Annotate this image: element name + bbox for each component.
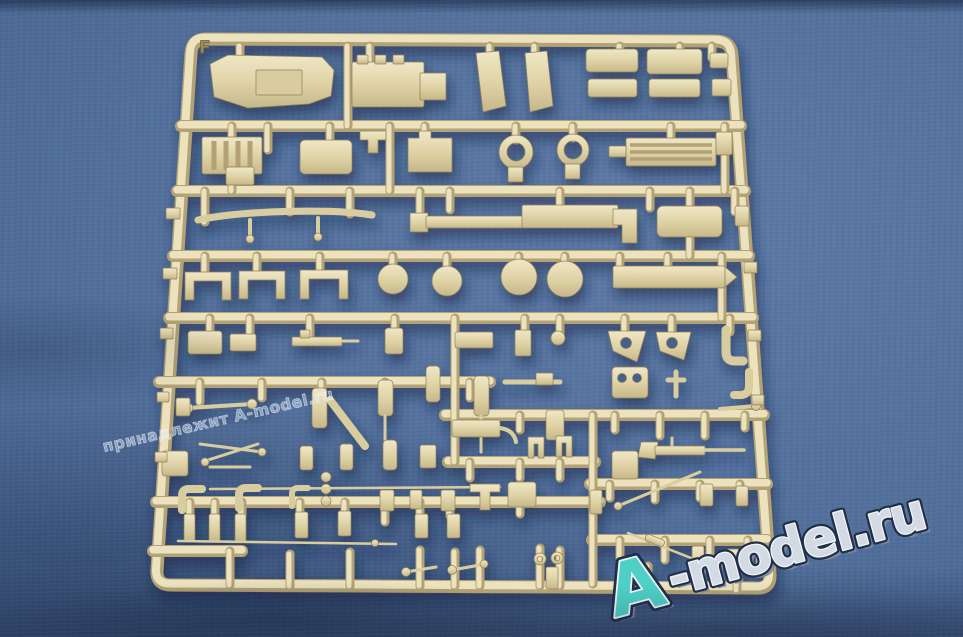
sprue-part-plate [235,514,246,542]
sprue-part-plate [340,444,353,470]
sprue-part-plate [447,514,460,538]
sprue-part-disc [321,496,331,506]
sprue-part-disc [480,560,488,568]
sprue-part-plate [735,206,749,226]
sprue-part-plate [176,398,190,416]
sprue-part-shape [408,131,452,172]
sprue-part-plate [546,567,558,589]
sprue-part-plate [612,367,648,398]
sprue-runners [153,46,767,590]
sprue-part-plate [700,484,713,506]
sprue-part-disc [314,233,322,241]
sprue-part-plate [455,332,493,348]
sprue-part-pipe [500,428,516,442]
sprue-part-plate [647,49,702,74]
sprue-part-plate [546,410,564,440]
sprue-part-plate [256,70,302,95]
sprue-part-plate [736,486,748,506]
sprue-part-shape [300,270,348,299]
sprue-part-pipe [668,372,684,396]
sprue-part-plate [710,53,728,68]
sprue-part-disc [432,266,462,296]
sprue-part-pipe [198,211,372,220]
sprue-part-plate [157,392,169,402]
photo-background: F принадлежит A-model.ru A A A A -model.… [0,0,963,637]
sprue-part-disc [402,568,411,577]
sprue-part-plate [452,420,500,437]
sprue-part-disc [246,235,254,243]
sprue-part-disc [551,331,565,345]
sprue-part-shape [525,51,553,112]
sprue-part-plate [420,73,446,100]
sprue-part-plate [565,164,580,179]
sprue-part-plate [420,445,436,468]
sprue-part-plate [300,330,310,338]
plastic-sprue: F [153,38,770,591]
sprue-part-plate [748,330,761,341]
sprue-part-shape [360,131,386,153]
sprue-part-plate [300,446,313,470]
sprue-part-disc [547,261,583,297]
sprue-part-shape [476,51,506,112]
sprue-part-plate [657,206,722,237]
sprue-part-plate [588,79,637,97]
sprue-part-shape [556,436,572,457]
sprue-part-disc [258,448,266,456]
sprue-part-plate [410,213,428,232]
sprue-part-ring [557,134,589,166]
sprue-part-hole [633,374,642,383]
sprue-part-disc [201,458,209,466]
sprue-part-plate [357,55,368,64]
sprue-part-disc [321,472,331,482]
sprue-part-hole [667,338,678,349]
sprue-part-plate [508,482,536,507]
sprue-part-plate [609,146,626,157]
sprue-part-plate [613,266,725,288]
sprue-part-shape [528,437,544,458]
sprue-part-plate [160,328,173,339]
sprue-part-plate [515,330,531,356]
sprue-part-plate [383,440,397,470]
sprue-part-plate [393,55,404,64]
sprue-part-plate [155,452,167,462]
sprue-part-plate [380,490,394,511]
sprue-part-plate [292,337,342,346]
sprue-part-rod [720,406,756,409]
sprue-part-plate [752,395,764,405]
sprue-part-plate [590,490,602,514]
sprue-part-plate [716,132,732,155]
sprue-part-plate [474,376,489,416]
sprue-part-plate [338,511,351,536]
sprue-letter-label: F [199,38,211,58]
sprue-part-shape [725,267,737,287]
sprue-part-disc [501,259,537,295]
sprue-part-plate [188,331,222,354]
sprue-part-plate [166,208,180,219]
sprue-part-plate [655,446,705,455]
sprue-part-plate [415,514,428,538]
sprue-part-plate [295,512,308,538]
sprue-part-disc [448,566,457,575]
sprue-part-plate [426,366,440,402]
sprue-part-plate [744,262,757,273]
sprue-part-plate [712,79,731,96]
sprue-part-disc [372,540,379,547]
sprue-part-hole [621,338,632,349]
sprue-part-plate [226,167,254,185]
sprue-part-plate [300,140,352,174]
sprue-part-plate [612,451,638,479]
sprue-part-plate [536,373,553,385]
sprue-part-rod [178,541,396,544]
sprue-part-plate [352,62,424,107]
sprue-part-plate [508,167,523,182]
sprue-part-plate [649,79,700,97]
sprue-part-pipe [330,400,365,446]
sprue-part-plate [522,205,618,228]
sprue-part-shape [239,271,285,299]
sprue-part-plate [375,55,386,64]
sprue-part-plate [410,490,422,509]
sprue-part-plate [441,490,455,511]
sprue-part-pipe [734,372,749,395]
sprue-part-plate [586,49,638,72]
sprue-part-plate [385,328,403,354]
sprue-part-plate [209,514,220,542]
sprue-part-disc [614,502,622,510]
sprue-part-plate [378,380,393,416]
sprue-photo-svg: F принадлежит A-model.ru A A A A -model.… [0,0,963,637]
sprue-part-pipe [726,330,743,361]
sprue-part-plate [163,268,177,279]
sprue-part-hole [618,374,627,383]
sprue-part-ring [499,135,533,169]
sprue-part-plate [230,334,256,351]
sprue-part-plate [426,216,526,228]
sprue-part-plate [184,514,195,542]
sprue-part-disc [378,264,408,294]
sprue-part-shape [185,272,231,300]
